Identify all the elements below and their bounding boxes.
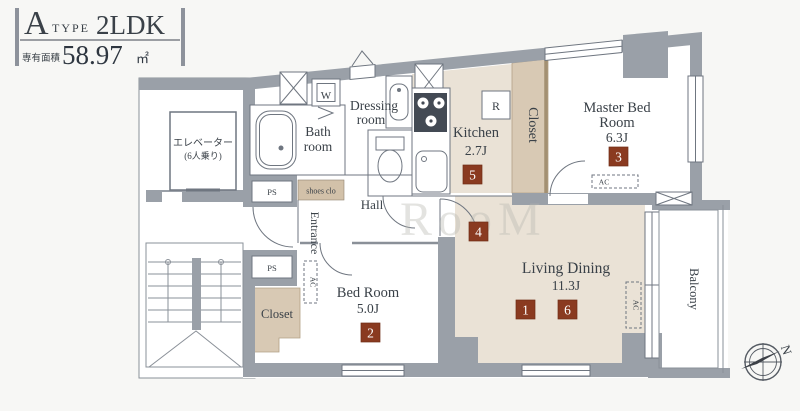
marker-3: 3	[609, 147, 628, 166]
shoes-closet-label: shoes clo	[306, 187, 336, 196]
dressing-top-door-swing	[352, 51, 373, 66]
svg-text:6: 6	[564, 303, 571, 318]
kitchen-size: 2.7J	[465, 143, 487, 158]
dressing-label-2: room	[357, 112, 386, 127]
marker-2: 2	[361, 323, 380, 342]
marker-4: 4	[469, 222, 488, 241]
toilet	[368, 130, 412, 196]
refrigerator-label: R	[492, 99, 500, 113]
kitchen-label: Kitchen	[453, 125, 500, 141]
dressing-top-door	[350, 65, 375, 80]
washer-label: W	[321, 90, 332, 102]
bedroom-closet-label: Closet	[261, 307, 293, 321]
ac-label-living: AC	[632, 300, 641, 310]
living-label: Living Dining	[522, 260, 611, 277]
elevator-label: エレベーター	[173, 137, 233, 149]
marker-5: 5	[463, 165, 482, 184]
staircase	[146, 243, 243, 367]
ps-label-upper: PS	[267, 187, 277, 197]
entrance-label: Entrance	[308, 212, 322, 255]
bedroom-label: Bed Room	[337, 285, 400, 301]
compass-icon	[741, 343, 782, 381]
svg-text:2: 2	[367, 326, 374, 341]
ps-label-lower: PS	[267, 263, 277, 273]
kitchen-counter	[412, 88, 450, 194]
balcony-label: Balcony	[687, 268, 701, 310]
dressing-label-1: Dressing	[350, 98, 398, 113]
svg-text:3: 3	[615, 150, 622, 165]
master-size: 6.3J	[606, 130, 628, 145]
north-label: N	[778, 343, 795, 357]
title-bar-right	[181, 8, 185, 66]
master-door-gap	[548, 194, 588, 204]
bath-label-2: room	[304, 139, 333, 154]
ac-label-bedroom: AC	[309, 277, 318, 287]
svg-text:4: 4	[475, 225, 482, 240]
title-bar-left	[15, 8, 19, 66]
area-value-line: 58.97 ㎡	[62, 40, 149, 70]
bathtub-drain	[279, 146, 284, 151]
plan-type-title: A TYPE 2LDK	[24, 5, 165, 42]
hall-label: Hall	[361, 197, 384, 212]
area-label: 専有面積	[22, 52, 61, 64]
svg-text:5: 5	[469, 168, 476, 183]
master-closet-label: Closet	[525, 107, 540, 143]
elevator-capacity: (6人乗り)	[184, 150, 222, 161]
master-label-1: Master Bed	[583, 100, 651, 116]
bedroom-size: 5.0J	[357, 301, 379, 316]
kitchen-sink-icon	[416, 151, 447, 192]
master-label-2: Room	[599, 115, 635, 131]
bath-label-1: Bath	[305, 124, 331, 139]
marker-6: 6	[558, 300, 577, 319]
floorplan-page: PS PS エレベーター (6人乗り) W	[0, 0, 800, 411]
marker-1: 1	[516, 300, 535, 319]
floorplan-drawing: PS PS エレベーター (6人乗り) W	[0, 0, 800, 411]
elevator-wall-notch	[162, 192, 182, 202]
ac-label-master: AC	[599, 178, 609, 187]
living-size: 11.3J	[552, 278, 580, 293]
title-block: A TYPE 2LDK 専有面積 58.97 ㎡	[15, 5, 185, 70]
svg-text:1: 1	[522, 303, 529, 318]
